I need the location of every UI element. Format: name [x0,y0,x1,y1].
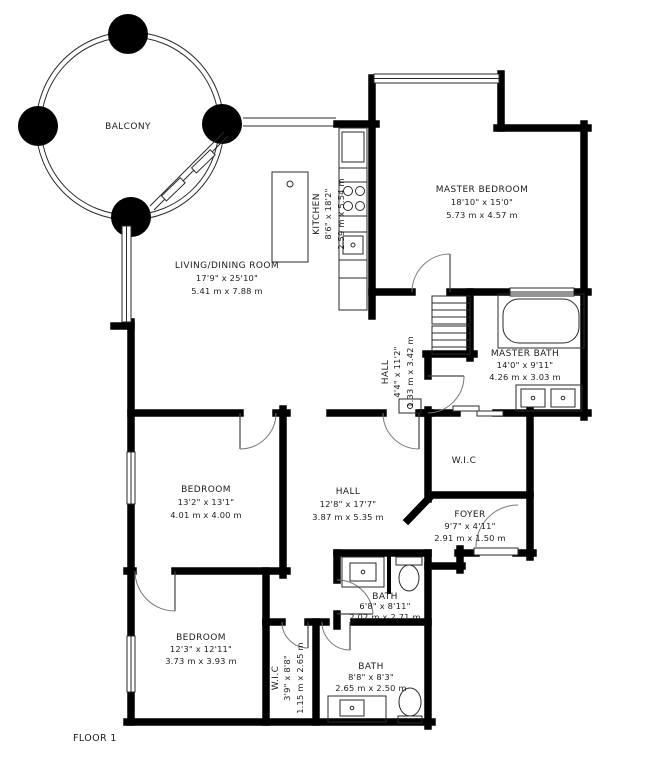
bedroom2-label: BEDROOM [176,633,226,643]
sink-icon [521,389,545,407]
master-bedroom-imperial: 18'10" x 15'0" [451,197,513,207]
toilet-tank-icon [396,557,422,565]
balcony [18,14,336,237]
walls [114,74,588,726]
bath2-metric: 2.65 m x 2.50 m [335,683,407,693]
kitchen-sink-drain [351,243,355,247]
balcony-slider-panel [162,178,186,201]
foyer-imperial: 9'7" x 4'11" [444,521,495,531]
column-icon [202,104,242,144]
bath2-imperial: 8'8" x 8'3" [348,672,394,682]
hall-imperial: 12'8" x 17'7" [320,499,377,509]
wall-foyer-diagonal [408,497,430,520]
wic-upper-label: W.I.C [452,456,477,466]
wic2-imperial: 3'9" x 8'8" [282,655,292,701]
sliding-door-wic-b [477,411,503,416]
wic2-metric: 1.15 m x 2.65 m [295,642,305,714]
living-dining-metric: 5.41 m x 7.88 m [191,286,263,296]
kitchen-metric: 2.59 m x 5.54 m [336,178,346,250]
stove-burner-icon [356,202,365,211]
bedroom1-imperial: 13'2" x 13'1" [178,497,235,507]
floor-label: FLOOR 1 [73,733,117,744]
hall-small-metric: 1.33 m x 3.42 m [405,336,415,408]
wic2-label-group: W.I.C 3'9" x 8'8" 1.15 m x 2.65 m [271,642,305,714]
bedroom1-metric: 4.01 m x 4.00 m [170,510,242,520]
hall-small-label: HALL [381,360,391,385]
bath1-vanity [342,557,384,587]
door-panel-entry [474,548,518,555]
master-bedroom-metric: 5.73 m x 4.57 m [446,210,518,220]
foyer-metric: 2.91 m x 1.50 m [434,533,506,543]
living-dining-imperial: 17'9" x 25'10" [196,273,258,283]
hall-small-imperial: 4'4" x 11'2" [392,346,402,397]
wall-entry-step [428,549,462,570]
master-bath-metric: 4.26 m x 3.03 m [489,372,561,382]
door-arc-bedroom1 [240,413,276,449]
dryer-slats [432,333,470,347]
sink-drain [561,396,565,400]
bath1-imperial: 6'8" x 8'11" [359,601,410,611]
sink-drain [361,570,365,574]
balcony-label: BALCONY [105,122,151,132]
balcony-window-band [243,118,336,126]
bath2-label: BATH [358,662,384,672]
master-bath-imperial: 14'0" x 9'11" [497,360,554,370]
wic2-label: W.I.C [271,666,281,691]
bedroom1-label: BEDROOM [181,485,231,495]
master-bath-label: MASTER BATH [491,349,559,359]
hall-label: HALL [336,487,361,497]
fridge-icon [342,132,364,162]
sliding-door-wic-a [453,406,479,411]
stove-burner-icon [356,187,365,196]
living-dining-label: LIVING/DINING ROOM [175,261,279,271]
toilet-icon [399,565,419,591]
kitchen-label: KITCHEN [312,193,322,235]
sink-drain [531,396,535,400]
foyer-label: FOYER [454,510,485,520]
hall-metric: 3.87 m x 5.35 m [312,512,384,522]
kitchen-island [272,172,308,262]
bedroom2-imperial: 12'3" x 12'11" [170,644,232,654]
floor-plan-page: BALCONY LIVING/DINING ROOM 17'9" x 25'10… [0,0,651,768]
sink-icon [551,389,575,407]
bath1-metric: 2.02 m x 2.71 m [349,612,421,622]
sink-icon [350,563,376,581]
island-sink-icon [287,181,293,187]
column-icon [108,14,148,54]
kitchen-sink-icon [343,236,363,254]
sink-drain [350,706,354,710]
column-icon [18,106,58,146]
bathtub-basin [503,299,579,343]
door-arc-bedroom2 [135,571,175,611]
bedroom2-metric: 3.73 m x 3.93 m [165,656,237,666]
doors [135,254,518,650]
master-bedroom-label: MASTER BEDROOM [436,185,529,195]
door-arc-masterbed [412,254,450,292]
balcony-rail-diagonal [150,132,228,210]
floor-plan-drawing: BALCONY LIVING/DINING ROOM 17'9" x 25'10… [0,0,651,768]
sink-icon [340,700,364,716]
bathtub-icon [498,294,584,348]
door-arc-hall [383,413,419,449]
hall-small-label-group: HALL 4'4" x 11'2" 1.33 m x 3.42 m [381,336,415,408]
kitchen-label-group: KITCHEN 8'6" x 18'2" 2.59 m x 5.54 m [312,178,346,250]
washer-slats [432,303,470,317]
kitchen-imperial: 8'6" x 18'2" [323,188,333,239]
